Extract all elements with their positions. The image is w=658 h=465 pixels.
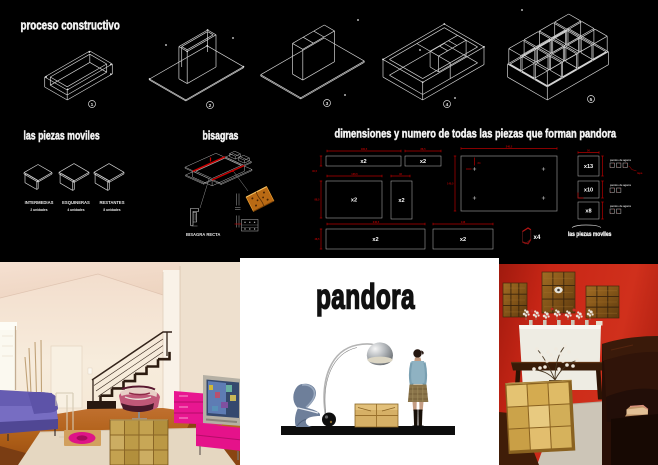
svg-text:88,5: 88,5 <box>420 147 426 151</box>
svg-text:3: 3 <box>326 101 329 107</box>
svg-text:8 unidades: 8 unidades <box>103 208 120 212</box>
svg-text:x2: x2 <box>372 237 378 243</box>
svg-text:2: 2 <box>209 103 212 109</box>
svg-text:x2: x2 <box>351 198 357 204</box>
svg-text:146: 146 <box>461 220 466 224</box>
svg-text:x8: x8 <box>585 209 591 215</box>
svg-text:1: 1 <box>91 102 94 108</box>
svg-text:x10: x10 <box>584 188 593 194</box>
svg-text:180,5: 180,5 <box>361 147 368 151</box>
svg-text:pandora: pandora <box>316 278 415 316</box>
svg-text:40,5: 40,5 <box>312 169 318 173</box>
svg-text:2 unidades: 2 unidades <box>30 208 47 212</box>
svg-text:x13: x13 <box>584 164 593 170</box>
svg-text:x2: x2 <box>420 159 426 165</box>
svg-text:140,5: 140,5 <box>447 182 454 186</box>
svg-text:dimensiones y numero de todas: dimensiones y numero de todas las piezas… <box>335 128 617 141</box>
svg-text:x2: x2 <box>460 237 466 243</box>
svg-text:puntos de agarre: puntos de agarre <box>610 204 632 208</box>
svg-text:INTERMEDIAS: INTERMEDIAS <box>25 200 54 205</box>
svg-text:88,5: 88,5 <box>314 198 320 202</box>
svg-text:tapa: tapa <box>637 171 643 175</box>
svg-text:ESQUINERAS: ESQUINERAS <box>62 200 90 205</box>
svg-text:136,5: 136,5 <box>351 172 358 176</box>
svg-text:BISAGRA RECTA: BISAGRA RECTA <box>186 232 220 237</box>
svg-text:RESTANTES: RESTANTES <box>99 200 124 205</box>
svg-text:4 unidades: 4 unidades <box>67 208 84 212</box>
svg-text:puntos de agarre: puntos de agarre <box>610 158 632 162</box>
svg-text:x2: x2 <box>398 198 404 204</box>
svg-text:bisagras: bisagras <box>203 130 239 142</box>
svg-text:240,5: 240,5 <box>373 220 380 224</box>
svg-text:proceso constructivo: proceso constructivo <box>21 18 120 33</box>
svg-text:240,5: 240,5 <box>506 145 513 149</box>
svg-text:4: 4 <box>446 102 449 108</box>
svg-text:48,5: 48,5 <box>314 237 320 241</box>
svg-text:5: 5 <box>590 97 593 103</box>
svg-text:x4: x4 <box>534 234 541 241</box>
svg-text:x2: x2 <box>360 159 366 165</box>
svg-text:puntos de agarre: puntos de agarre <box>610 183 632 187</box>
svg-text:las piezas moviles: las piezas moviles <box>24 130 100 142</box>
svg-text:las piezas moviles: las piezas moviles <box>568 232 611 239</box>
